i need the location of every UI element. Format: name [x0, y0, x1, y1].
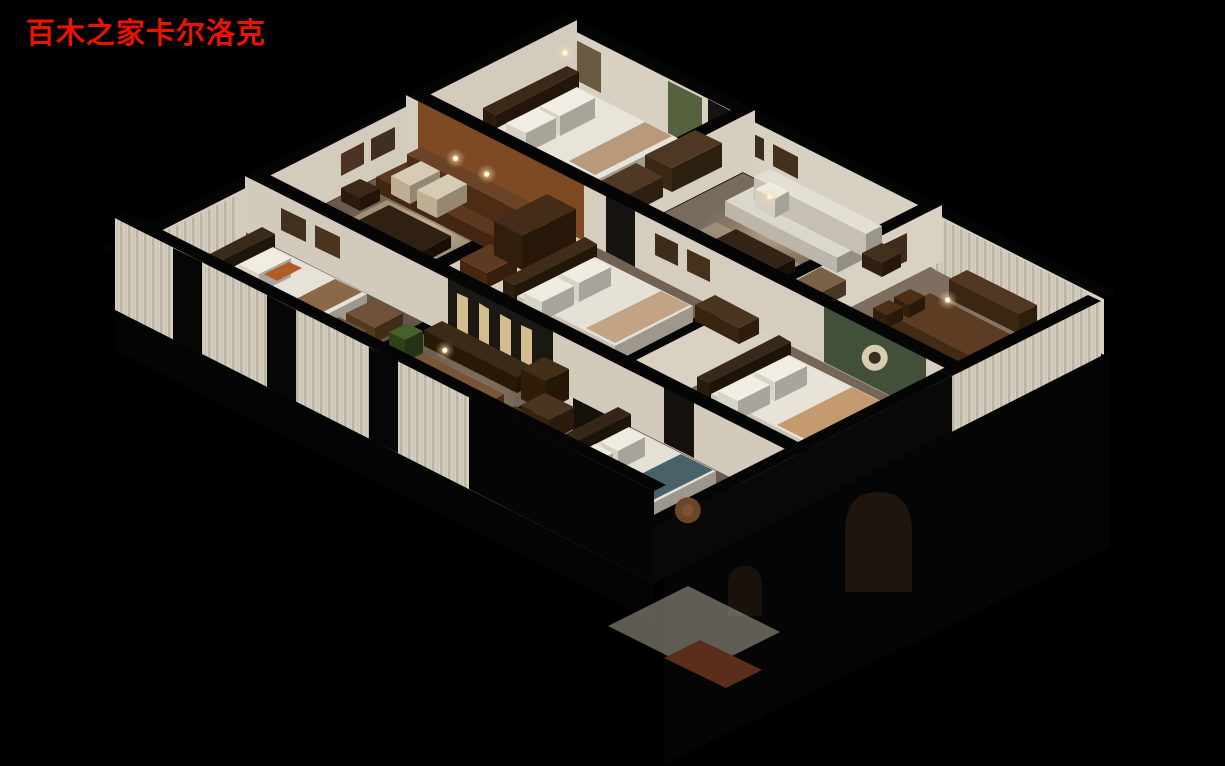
render-canvas: 百木之家卡尔洛克 [0, 0, 1225, 766]
arch-opening-small [728, 566, 762, 616]
scene-layer [102, 14, 1117, 764]
apartment-cutaway-render [0, 0, 1225, 766]
round-table-top-center [682, 504, 694, 516]
wall-lamp [453, 156, 458, 161]
wall-lamp [484, 172, 489, 177]
ceiling-spot [562, 50, 567, 55]
arch-opening-large [845, 492, 912, 592]
wall-exterior-south-curtains-panel [267, 295, 296, 402]
chandelier-dining [945, 297, 950, 302]
brand-title: 百木之家卡尔洛克 [26, 10, 266, 52]
wall-exterior-south-curtains-panel [369, 347, 398, 453]
sunburst-mirror-center [869, 352, 881, 364]
chandelier-lounge [767, 194, 772, 199]
wall-exterior-south-curtains-panel [173, 248, 202, 354]
chandelier-living-south [442, 348, 447, 353]
